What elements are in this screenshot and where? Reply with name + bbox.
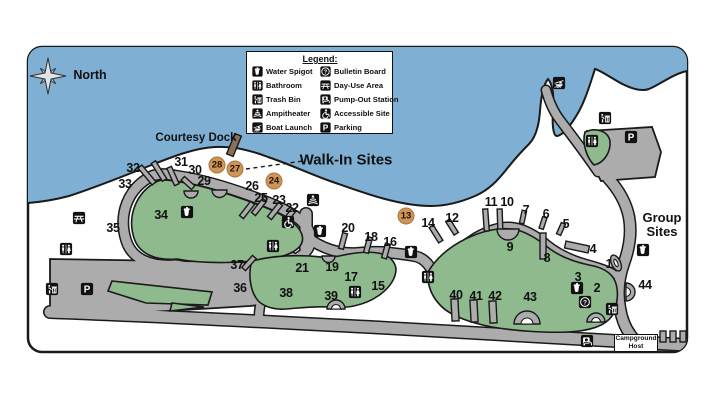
accessible-icon [320, 108, 331, 119]
site-number-label: 33 [118, 177, 131, 191]
legend-column-left: Water Spigot Bathroom Trash Bin Ampithea… [252, 65, 320, 134]
site-number-label: 40 [449, 288, 462, 302]
site-number-label: 37 [230, 258, 243, 272]
site-number-label: 26 [245, 179, 258, 193]
campground-map: ? [0, 0, 711, 400]
site-number-label: 14 [421, 216, 434, 230]
pump-out-icon [320, 94, 331, 105]
boat-launch-icon [252, 122, 263, 133]
legend-item-accessible: Accessible Site [320, 106, 388, 120]
legend-item-trash-bin: Trash Bin [252, 93, 320, 107]
site-number-label: 1 [606, 257, 613, 271]
amphitheater-icon [307, 194, 320, 207]
site-number-label: 23 [272, 193, 285, 207]
site-number-label: 11 [485, 195, 498, 209]
trash-bin-icon [46, 283, 59, 296]
site-number-label: 19 [325, 260, 338, 274]
site-number-label: 36 [233, 281, 246, 295]
site-number-label: 44 [638, 278, 651, 292]
legend-item-pump-out: Pump-Out Station [320, 93, 388, 107]
site-number-label: 17 [344, 270, 357, 284]
site-number-label: 18 [364, 230, 377, 244]
site-number-label: 32 [126, 161, 139, 175]
site-number-label: 9 [507, 240, 514, 254]
site-number-label: 38 [279, 286, 292, 300]
bathroom-icon [422, 271, 435, 284]
courtesy-dock-label: Courtesy Dock [155, 132, 236, 144]
boat-launch-icon [553, 77, 566, 90]
day-use-icon [320, 80, 331, 91]
walk-in-site-marker: 13 [398, 208, 415, 225]
site-number-label: 30 [188, 163, 201, 177]
bulletin-board-icon [320, 66, 331, 77]
legend-item-bathroom: Bathroom [252, 79, 320, 93]
bathroom-icon [252, 80, 263, 91]
trash-bin-icon [599, 112, 612, 125]
site-number-label: 8 [544, 251, 551, 265]
site-number-label: 5 [563, 217, 570, 231]
amphitheater-icon [252, 108, 263, 119]
campground-host-label: Campground Host [614, 334, 658, 352]
site-number-label: 31 [174, 155, 187, 169]
site-number-label: 34 [154, 208, 167, 222]
trash-bin-icon [252, 94, 263, 105]
site-number-label: 21 [295, 261, 308, 275]
water-spigot-icon [571, 282, 584, 295]
walk-in-site-marker: 27 [227, 161, 244, 178]
group-sites-label: Group Sites [636, 211, 688, 239]
site-number-label: 6 [543, 207, 550, 221]
site-number-label: 35 [106, 221, 119, 235]
trash-bin-icon [606, 303, 619, 316]
legend-item-parking: Parking [320, 120, 388, 134]
legend-item-bulletin-board: Bulletin Board [320, 65, 388, 79]
bathroom-icon [60, 243, 73, 256]
day-use-icon [73, 212, 86, 225]
legend-item-day-use: Day-Use Area [320, 79, 388, 93]
legend-item-amphitheater: Ampitheater [252, 106, 320, 120]
site-number-label: 25 [254, 191, 267, 205]
site-number-label: 22 [285, 201, 298, 215]
site-number-label: 42 [488, 289, 501, 303]
walk-in-site-marker: 28 [209, 157, 226, 174]
site-number-label: 15 [371, 279, 384, 293]
bulletin-board-icon [579, 296, 592, 309]
legend-column-right: Bulletin Board Day-Use Area Pump-Out Sta… [320, 65, 388, 134]
site-number-label: 4 [590, 242, 597, 256]
legend-item-water-spigot: Water Spigot [252, 65, 320, 79]
walk-in-site-marker: 24 [266, 173, 283, 190]
site-number-label: 20 [341, 221, 354, 235]
water-spigot-icon [314, 225, 327, 238]
site-number-label: 16 [383, 235, 396, 249]
bathroom-icon [349, 286, 362, 299]
site-number-label: 2 [594, 281, 601, 295]
water-spigot-icon [405, 246, 418, 259]
water-spigot-icon [252, 66, 263, 77]
bathroom-icon [586, 135, 599, 148]
legend: Legend: Water Spigot Bathroom Trash Bin … [246, 51, 393, 134]
walk-in-sites-label: Walk-In Sites [300, 152, 393, 169]
site-number-label: 43 [523, 290, 536, 304]
parking-icon [81, 283, 94, 296]
site-number-label: 12 [445, 211, 458, 225]
site-number-label: 7 [523, 203, 530, 217]
legend-title: Legend: [252, 54, 388, 64]
parking-icon [320, 122, 331, 133]
pump-out-icon [581, 335, 594, 348]
legend-item-boat-launch: Boat Launch [252, 120, 320, 134]
site-number-label: 39 [324, 289, 337, 303]
water-spigot-icon [181, 206, 194, 219]
site-number-label: 41 [469, 289, 482, 303]
north-label: North [73, 68, 106, 82]
bathroom-icon [267, 240, 280, 253]
site-number-label: 10 [500, 195, 513, 209]
water-spigot-icon [637, 244, 650, 257]
accessible-icon [282, 216, 295, 229]
parking-icon [625, 131, 638, 144]
